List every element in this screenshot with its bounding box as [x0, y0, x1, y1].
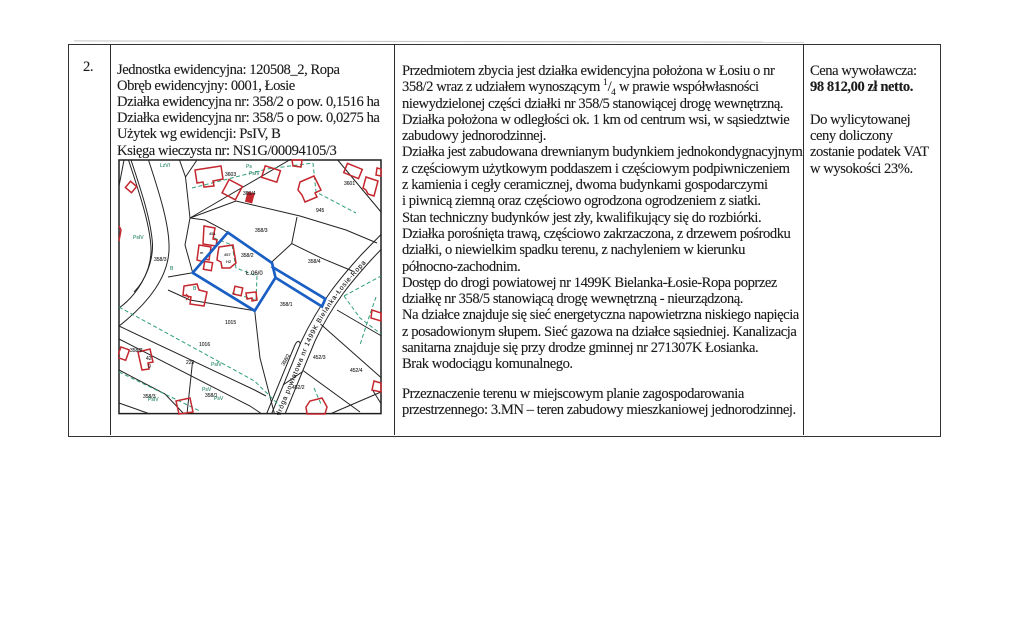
svg-text:PsIV: PsIV [211, 362, 222, 368]
svg-text:PsIV: PsIV [249, 171, 260, 177]
svg-text:Ps: Ps [246, 164, 252, 170]
svg-text:Ł.06/0: Ł.06/0 [246, 271, 263, 277]
svg-text:3601: 3601 [344, 181, 355, 187]
svg-text:PsIV: PsIV [148, 397, 159, 403]
svg-text:358/2: 358/2 [130, 348, 143, 354]
svg-text:360/4: 360/4 [243, 191, 256, 197]
svg-text:358/2: 358/2 [241, 253, 254, 259]
svg-text:452/3: 452/3 [313, 355, 326, 361]
svg-text:358/4: 358/4 [308, 259, 321, 265]
svg-text:457: 457 [224, 252, 231, 257]
svg-text:42: 42 [146, 356, 152, 362]
svg-text:LzVI: LzVI [160, 163, 170, 169]
svg-text:358/1: 358/1 [280, 302, 293, 308]
svg-text:PsIV: PsIV [133, 235, 144, 241]
svg-text:229: 229 [186, 360, 195, 366]
svg-text:452/4: 452/4 [350, 368, 363, 374]
svg-text:3603: 3603 [225, 172, 236, 178]
svg-text:1015: 1015 [225, 320, 236, 326]
svg-text:358/3: 358/3 [154, 257, 167, 263]
svg-text:945: 945 [316, 208, 325, 214]
svg-text:PsV: PsV [202, 387, 212, 393]
svg-text:PsV: PsV [214, 396, 224, 402]
svg-text:358/3: 358/3 [255, 228, 268, 234]
svg-text:H2: H2 [226, 259, 232, 264]
svg-text:9: 9 [148, 364, 151, 370]
svg-text:451: 451 [209, 231, 216, 236]
svg-text:1016: 1016 [199, 342, 210, 348]
